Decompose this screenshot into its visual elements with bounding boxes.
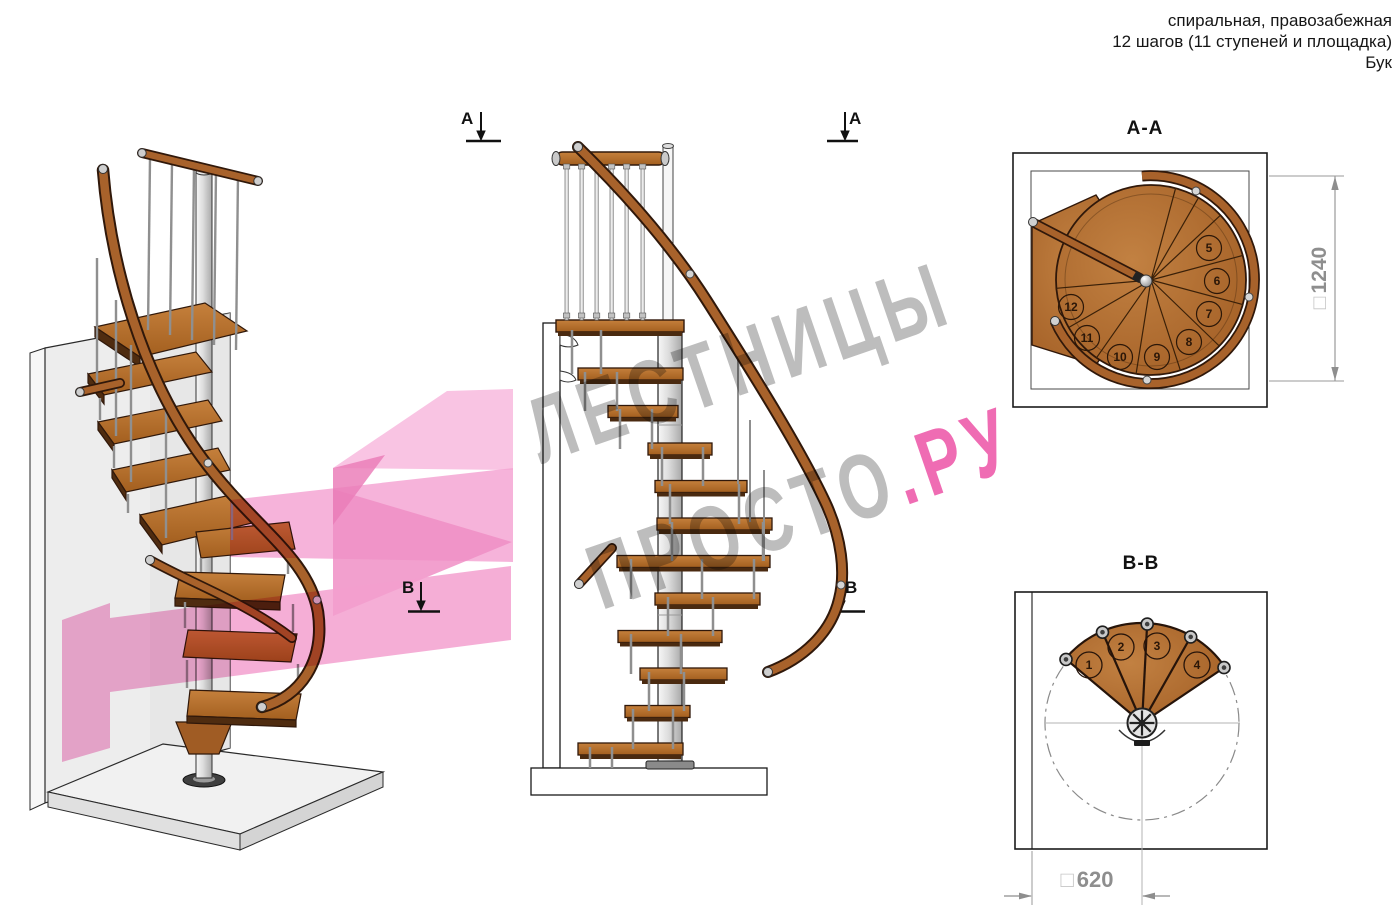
elevation-floor — [531, 768, 767, 795]
header-steps: 12 шагов (11 ступеней и площадка) — [1112, 31, 1392, 52]
square-symbol: □ — [1060, 867, 1073, 892]
dimension-bb: □620 — [1060, 867, 1113, 893]
bb-step-number: 1 — [1086, 658, 1093, 672]
drawing-canvas — [0, 0, 1400, 911]
marker-b-left: B — [402, 578, 414, 598]
bb-step-number: 3 — [1154, 639, 1161, 653]
marker-b-right: B — [845, 578, 857, 598]
elevation-balusters-top — [563, 164, 645, 320]
aa-step-number: 8 — [1186, 335, 1193, 349]
aa-step-number: 11 — [1081, 331, 1094, 345]
aa-step-number: 6 — [1214, 274, 1221, 288]
aa-step-number: 5 — [1206, 241, 1213, 255]
sheet-header: спиральная, правозабежная 12 шагов (11 с… — [1112, 10, 1392, 73]
header-material: Бук — [1112, 52, 1392, 73]
dimension-aa: □1240 — [1308, 247, 1332, 309]
aa-step-number: 7 — [1206, 307, 1213, 321]
section-title-bb: B-B — [1106, 553, 1176, 575]
bb-step-number: 2 — [1118, 640, 1125, 654]
elevation-wall — [543, 323, 560, 768]
aa-step-number: 9 — [1154, 350, 1161, 364]
bb-step-number: 4 — [1194, 658, 1201, 672]
plan-bb-view — [1004, 592, 1267, 905]
section-title-aa: A-A — [1110, 118, 1180, 140]
aa-dimension — [1269, 176, 1344, 381]
marker-a-right: A — [849, 109, 861, 129]
iso-view — [30, 149, 513, 850]
aa-step-number: 12 — [1064, 300, 1077, 314]
aa-step-number: 10 — [1113, 350, 1126, 364]
square-symbol: □ — [1308, 297, 1331, 310]
marker-a-left: A — [461, 109, 473, 129]
plan-aa-view — [1013, 153, 1344, 407]
drawing-sheet: спиральная, правозабежная 12 шагов (11 с… — [0, 0, 1400, 911]
elevation-wall-brackets — [560, 334, 578, 382]
header-type: спиральная, правозабежная — [1112, 10, 1392, 31]
